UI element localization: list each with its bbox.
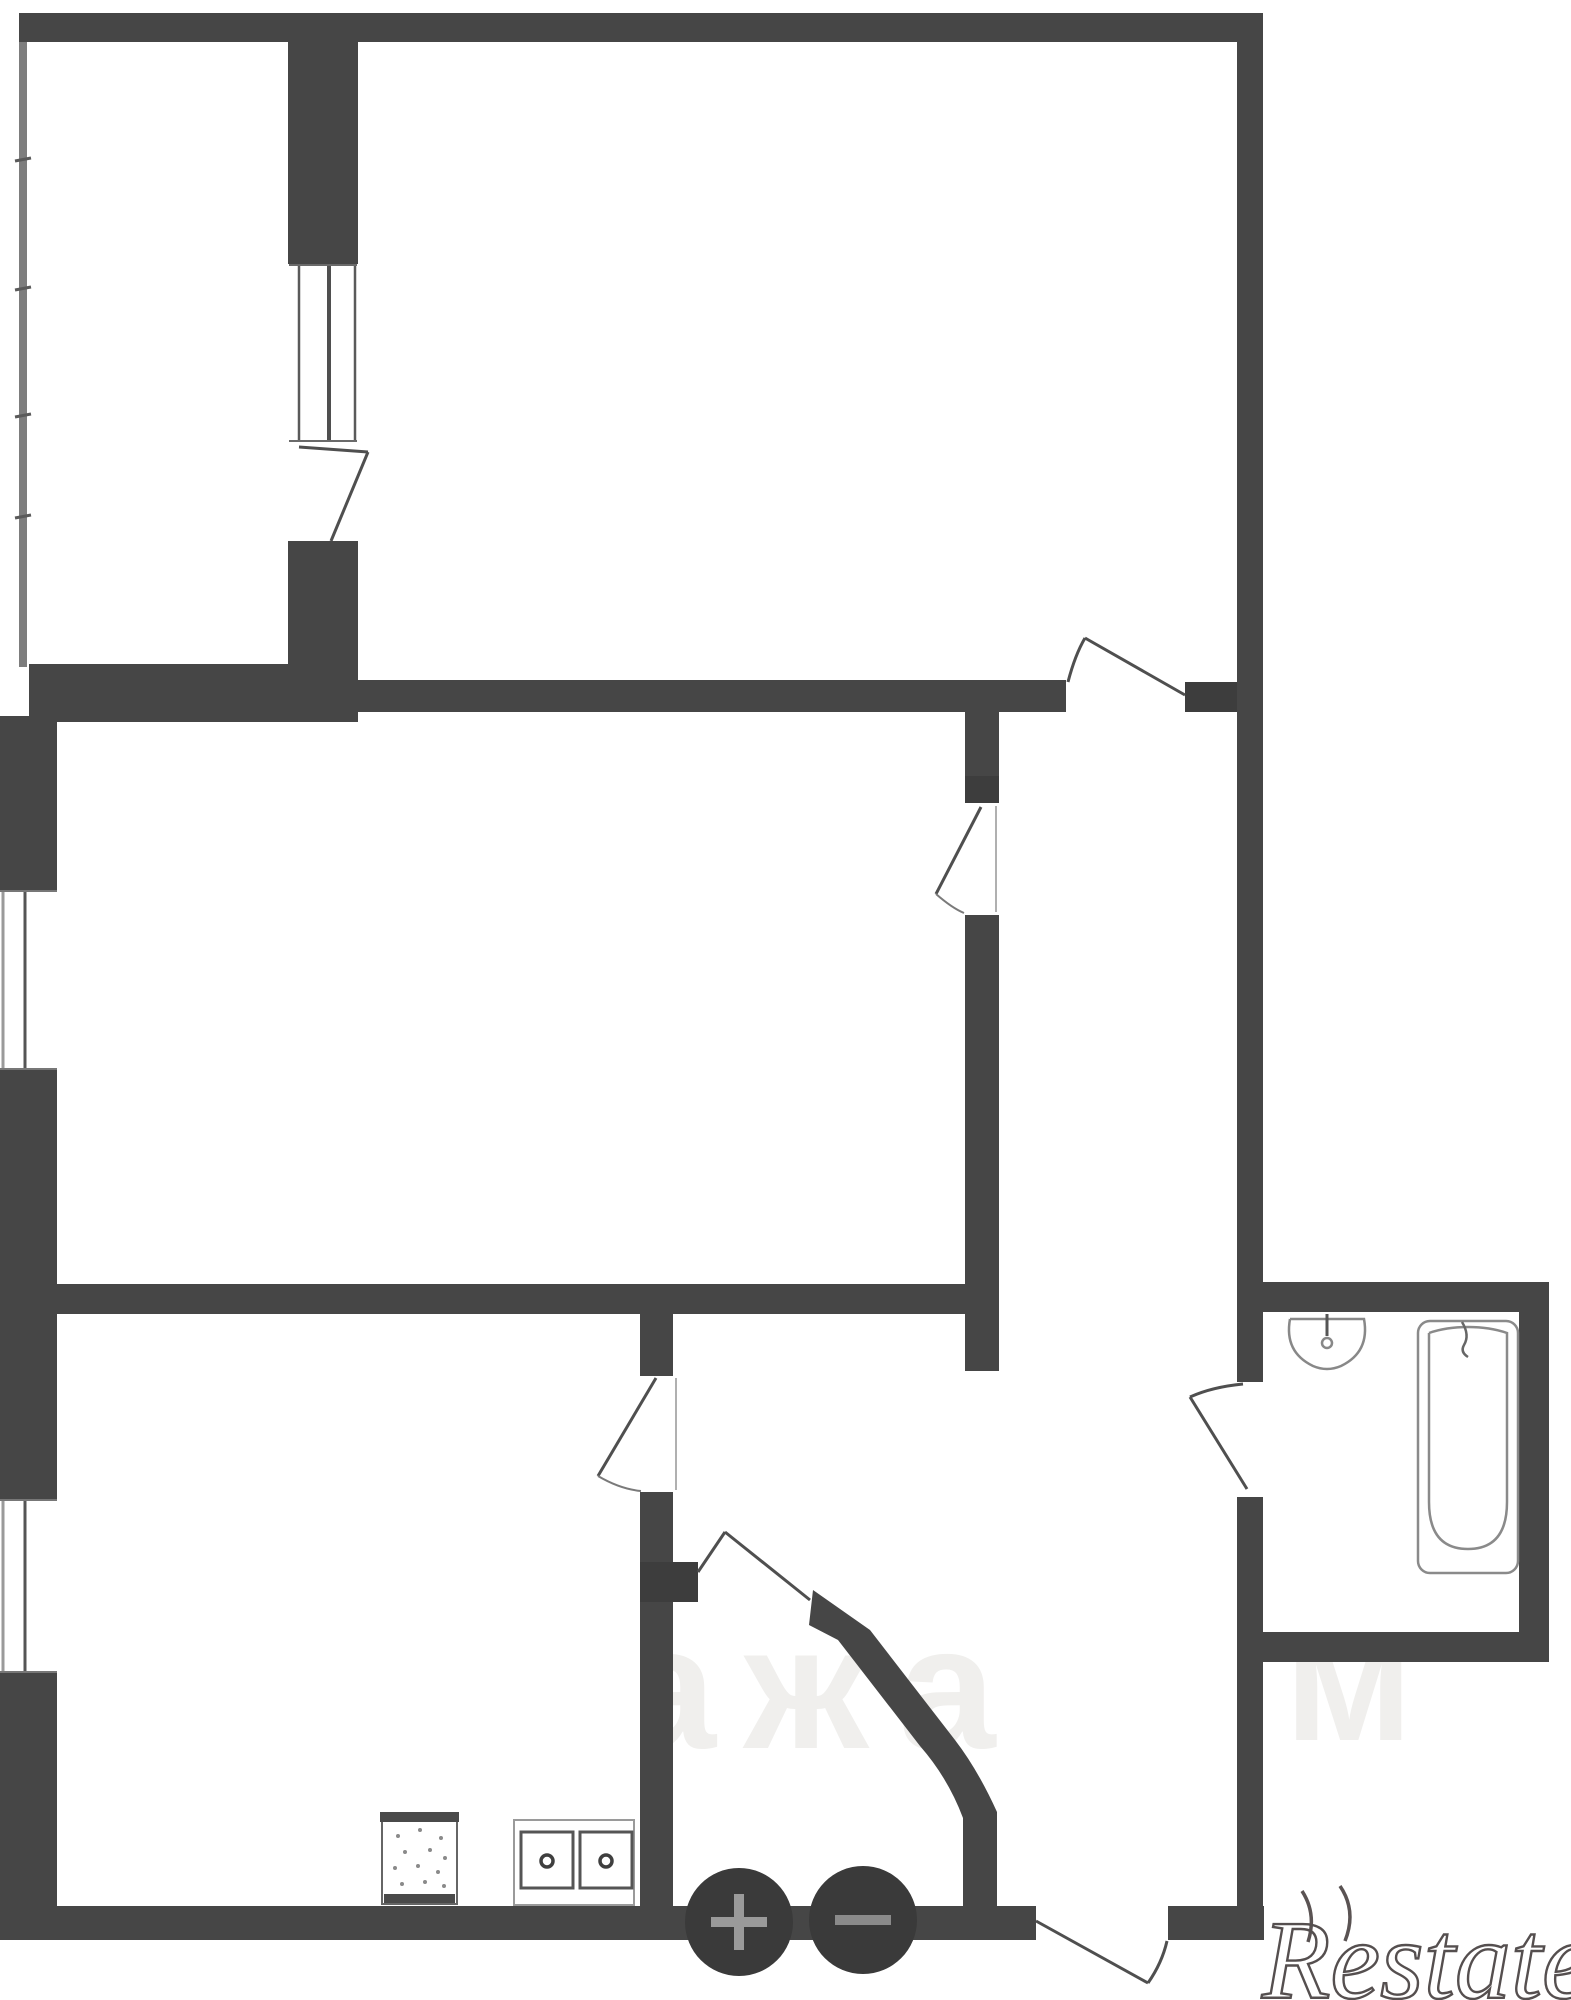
svg-text:Restate: Restate: [1261, 1899, 1571, 2000]
